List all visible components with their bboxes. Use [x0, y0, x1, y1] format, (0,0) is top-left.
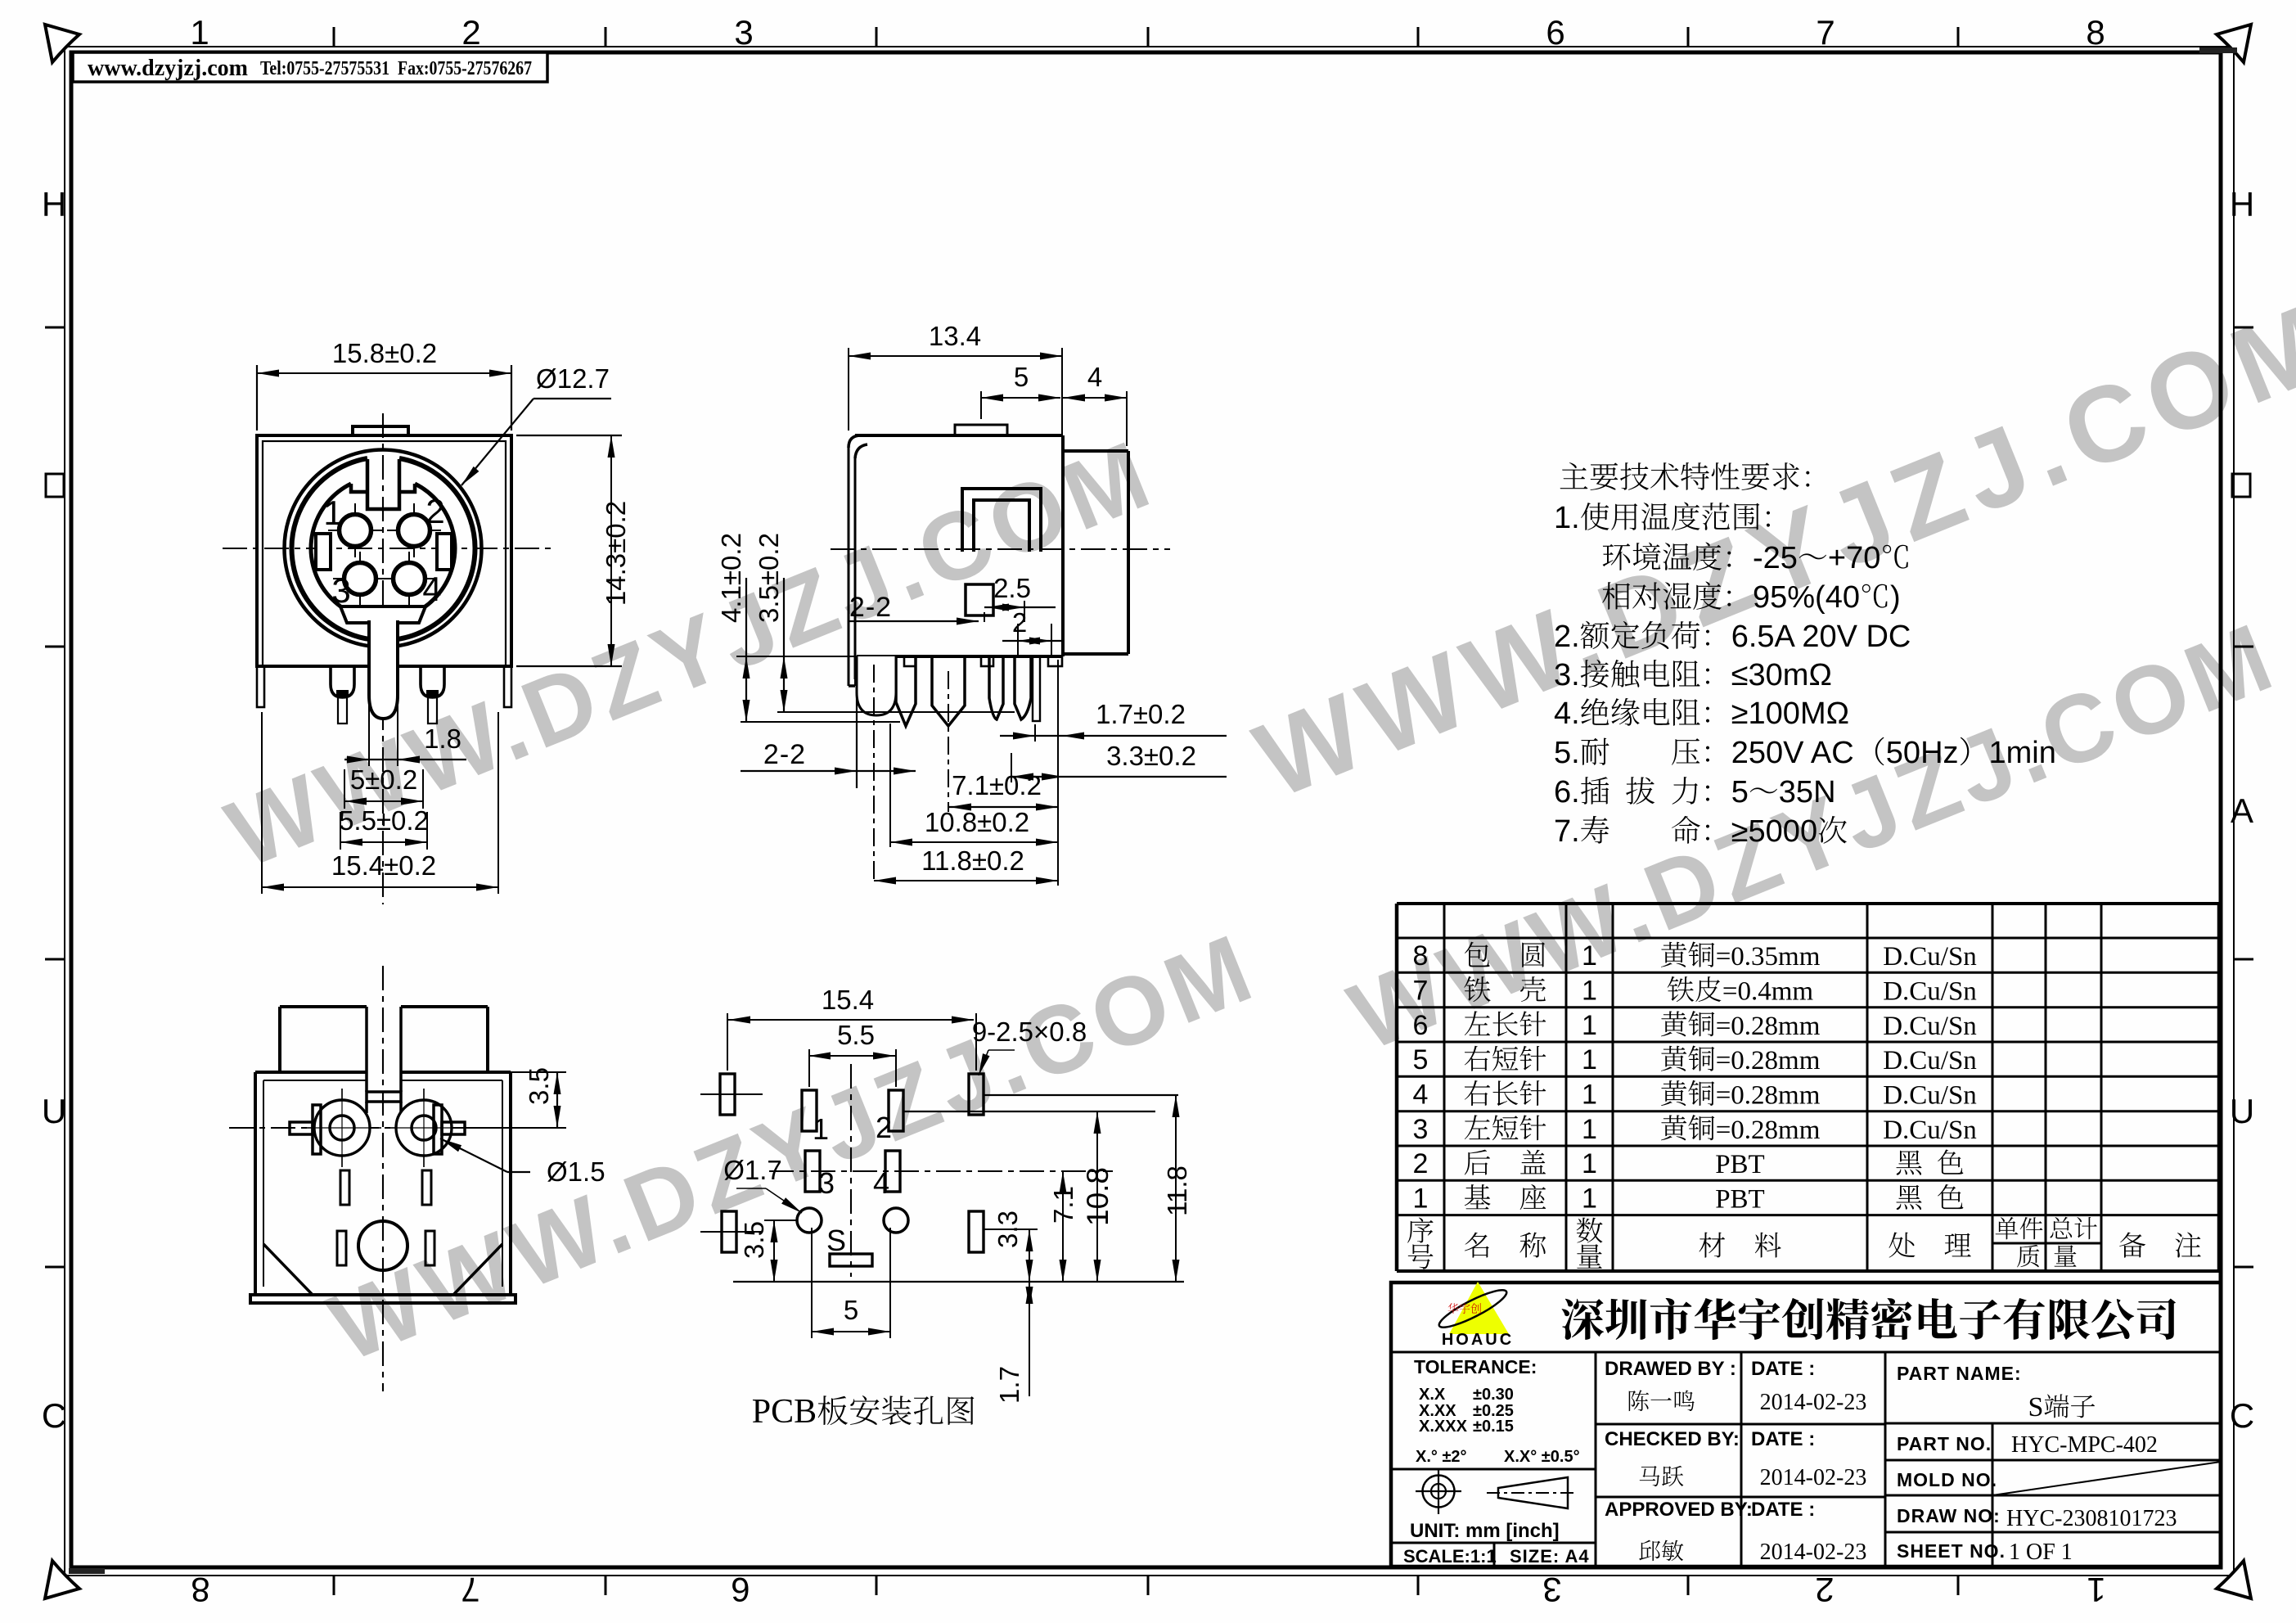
svg-text:D.Cu/Sn: D.Cu/Sn — [1883, 977, 1977, 1007]
svg-text:1.7: 1.7 — [994, 1366, 1024, 1404]
svg-text:=0.4mm: =0.4mm — [1722, 977, 1814, 1007]
svg-text:≤30m: ≤30m — [1731, 658, 1809, 692]
svg-text:X.X° ±0.5°: X.X° ±0.5° — [1504, 1448, 1580, 1466]
svg-text:1: 1 — [323, 494, 342, 532]
svg-text:Ø1.5: Ø1.5 — [547, 1156, 606, 1187]
svg-text:2: 2 — [1413, 1148, 1429, 1179]
svg-text:D.Cu/Sn: D.Cu/Sn — [1883, 1081, 1977, 1111]
svg-text:5: 5 — [1731, 775, 1749, 809]
svg-text:1: 1 — [190, 13, 209, 52]
svg-text:U: U — [2230, 1092, 2254, 1130]
svg-text:3: 3 — [1542, 1571, 1561, 1609]
svg-text:3: 3 — [1413, 1114, 1429, 1145]
svg-text:1: 1 — [1582, 1148, 1597, 1179]
svg-text:5: 5 — [1413, 1044, 1429, 1075]
svg-text:3.5: 3.5 — [739, 1221, 769, 1259]
svg-text:1: 1 — [1582, 1080, 1597, 1111]
svg-text:7.: 7. — [1554, 814, 1580, 849]
svg-text:250V AC: 250V AC — [1731, 736, 1854, 770]
svg-text:2-2: 2-2 — [849, 592, 892, 623]
svg-text:1: 1 — [1582, 1114, 1597, 1145]
svg-text:DRAW NO:: DRAW NO: — [1897, 1505, 2001, 1526]
svg-text:5: 5 — [1014, 362, 1029, 392]
svg-text:TOLERANCE:: TOLERANCE: — [1414, 1356, 1537, 1377]
svg-text:1min: 1min — [1989, 736, 2056, 770]
svg-text:H: H — [2230, 185, 2254, 223]
svg-text:1: 1 — [1582, 1010, 1597, 1041]
svg-text:DATE :: DATE : — [1751, 1428, 1815, 1450]
svg-text:S: S — [2028, 1392, 2044, 1422]
svg-text:2-2: 2-2 — [763, 739, 806, 770]
svg-text:5.: 5. — [1554, 736, 1580, 770]
svg-text:C: C — [2230, 1396, 2254, 1435]
svg-text:6.5A 20V DC: 6.5A 20V DC — [1731, 620, 1911, 654]
svg-text:2: 2 — [876, 1111, 892, 1144]
svg-text:www.dzyjzj.com: www.dzyjzj.com — [88, 55, 248, 81]
svg-text:A: A — [2231, 791, 2253, 830]
svg-text:15.4: 15.4 — [822, 985, 874, 1015]
svg-text:11.8±0.2: 11.8±0.2 — [921, 845, 1024, 876]
svg-text:CHECKED BY:: CHECKED BY: — [1605, 1428, 1740, 1450]
svg-text:4.: 4. — [1554, 697, 1580, 731]
svg-text:5.5: 5.5 — [837, 1020, 875, 1050]
svg-text:SCALE:1:1: SCALE:1:1 — [1403, 1546, 1497, 1567]
svg-text:1: 1 — [2087, 1571, 2105, 1609]
svg-text:PBT: PBT — [1715, 1185, 1765, 1215]
svg-text:1: 1 — [1582, 1183, 1597, 1215]
svg-text:1.8: 1.8 — [424, 724, 461, 754]
svg-text:HYC-2308101723: HYC-2308101723 — [2006, 1506, 2177, 1531]
svg-text:D.Cu/Sn: D.Cu/Sn — [1883, 942, 1977, 972]
svg-text:9-2.5×0.8: 9-2.5×0.8 — [972, 1017, 1087, 1047]
svg-text:UNIT: mm [inch]: UNIT: mm [inch] — [1410, 1520, 1560, 1542]
svg-text:7.1: 7.1 — [1048, 1186, 1078, 1224]
svg-text:8: 8 — [191, 1571, 209, 1609]
svg-text:2: 2 — [1012, 607, 1027, 638]
svg-text:Ω: Ω — [1809, 658, 1832, 692]
svg-text:15.4±0.2: 15.4±0.2 — [331, 850, 436, 881]
svg-text:2014-02-23: 2014-02-23 — [1760, 1390, 1867, 1415]
svg-text:DATE :: DATE : — [1751, 1499, 1815, 1521]
svg-text:1.: 1. — [1554, 501, 1580, 535]
svg-text:4: 4 — [873, 1166, 889, 1200]
svg-text:4: 4 — [1413, 1080, 1429, 1111]
svg-text:8: 8 — [1413, 940, 1429, 972]
svg-text:8: 8 — [2086, 13, 2105, 52]
svg-text:2.5: 2.5 — [993, 573, 1031, 603]
svg-text:D.Cu/Sn: D.Cu/Sn — [1883, 1116, 1977, 1145]
svg-text:=0.28mm: =0.28mm — [1716, 1116, 1821, 1145]
svg-text:15.8±0.2: 15.8±0.2 — [332, 338, 437, 368]
svg-text:1: 1 — [1582, 976, 1597, 1007]
svg-text:4: 4 — [1087, 362, 1102, 392]
svg-text:Ω: Ω — [1826, 697, 1849, 731]
svg-text:1: 1 — [1413, 1183, 1429, 1215]
svg-text:PART NO.: PART NO. — [1897, 1433, 1992, 1454]
svg-text:≥100M: ≥100M — [1731, 697, 1826, 731]
svg-text:3: 3 — [331, 571, 350, 610]
svg-text:2014-02-23: 2014-02-23 — [1760, 1540, 1867, 1565]
svg-text:1 OF 1: 1 OF 1 — [2009, 1540, 2073, 1565]
svg-text:±0.30: ±0.30 — [1473, 1386, 1514, 1404]
svg-text:): ) — [1890, 580, 1901, 615]
svg-text:HYC-MPC-402: HYC-MPC-402 — [2011, 1432, 2158, 1458]
svg-text:3: 3 — [734, 13, 753, 52]
svg-text:7: 7 — [461, 1571, 479, 1609]
svg-text:7: 7 — [1413, 976, 1429, 1007]
svg-text:=0.28mm: =0.28mm — [1716, 1012, 1821, 1041]
svg-text:3.5: 3.5 — [524, 1067, 554, 1105]
svg-text:C: C — [42, 1396, 66, 1435]
svg-text:Fax:0755-27576267: Fax:0755-27576267 — [398, 58, 532, 79]
svg-text:MOLD NO.: MOLD NO. — [1897, 1469, 1997, 1490]
svg-text:2: 2 — [1815, 1571, 1834, 1609]
svg-text:PBT: PBT — [1715, 1150, 1765, 1179]
svg-text:3.: 3. — [1554, 658, 1580, 692]
svg-text:11.8: 11.8 — [1162, 1165, 1192, 1216]
svg-text:±0.15: ±0.15 — [1473, 1418, 1514, 1436]
svg-text:2014-02-23: 2014-02-23 — [1760, 1465, 1867, 1490]
svg-text:3: 3 — [818, 1166, 835, 1200]
svg-text:2: 2 — [461, 13, 480, 52]
svg-text:1: 1 — [1582, 940, 1597, 972]
svg-text:5.5±0.2: 5.5±0.2 — [339, 805, 429, 836]
svg-text:+70: +70 — [1828, 541, 1880, 575]
svg-text:6: 6 — [1546, 13, 1564, 52]
svg-text:≥5000: ≥5000 — [1731, 814, 1817, 849]
svg-text:1: 1 — [813, 1112, 829, 1146]
svg-text:13.4: 13.4 — [929, 321, 981, 351]
svg-text:D.Cu/Sn: D.Cu/Sn — [1883, 1012, 1977, 1041]
svg-text:14.3±0.2: 14.3±0.2 — [601, 501, 631, 606]
svg-text:PART NAME:: PART NAME: — [1897, 1363, 2022, 1384]
svg-text:=0.28mm: =0.28mm — [1716, 1081, 1821, 1111]
svg-text:6.: 6. — [1554, 775, 1580, 809]
svg-text:6: 6 — [1413, 1010, 1429, 1041]
svg-text:95%(40: 95%(40 — [1753, 580, 1860, 615]
svg-text:Ø12.7: Ø12.7 — [536, 363, 610, 394]
svg-text:50Hz: 50Hz — [1886, 736, 1959, 770]
svg-text:PCB: PCB — [752, 1393, 817, 1431]
svg-text:X.X: X.X — [1419, 1386, 1446, 1404]
svg-text:5±0.2: 5±0.2 — [350, 764, 417, 795]
svg-text:-25: -25 — [1753, 541, 1798, 575]
svg-text:SHEET NO.: SHEET NO. — [1897, 1540, 2006, 1562]
svg-text:DRAWED BY :: DRAWED BY : — [1605, 1358, 1736, 1380]
svg-text:S: S — [826, 1224, 846, 1257]
svg-text:4: 4 — [422, 570, 441, 608]
svg-text:D.Cu/Sn: D.Cu/Sn — [1883, 1046, 1977, 1075]
svg-text:1: 1 — [1582, 1044, 1597, 1075]
svg-text:=0.35mm: =0.35mm — [1716, 942, 1821, 972]
svg-text:7: 7 — [1816, 13, 1835, 52]
svg-text:=0.28mm: =0.28mm — [1716, 1046, 1821, 1075]
svg-text:H: H — [42, 185, 66, 223]
svg-text:10.8: 10.8 — [1081, 1167, 1114, 1226]
svg-text:Ø1.7: Ø1.7 — [723, 1155, 782, 1185]
svg-text:U: U — [42, 1092, 66, 1130]
svg-text:3.3: 3.3 — [993, 1210, 1023, 1248]
svg-text:HOAUC: HOAUC — [1442, 1331, 1514, 1349]
svg-text:5: 5 — [844, 1295, 858, 1325]
svg-text:35N: 35N — [1779, 775, 1836, 809]
svg-text:X.XXX: X.XXX — [1419, 1418, 1468, 1436]
svg-text:1.7±0.2: 1.7±0.2 — [1096, 699, 1186, 729]
svg-text:3.5±0.2: 3.5±0.2 — [754, 533, 784, 623]
svg-text:10.8±0.2: 10.8±0.2 — [925, 807, 1029, 837]
svg-text:SIZE: A4: SIZE: A4 — [1510, 1546, 1590, 1567]
svg-text:Tel:0755-27575531: Tel:0755-27575531 — [260, 58, 389, 79]
svg-text:7.1±0.2: 7.1±0.2 — [952, 770, 1042, 800]
svg-text:2.: 2. — [1554, 620, 1580, 654]
svg-text:DATE :: DATE : — [1751, 1358, 1815, 1380]
svg-text:2: 2 — [425, 492, 444, 530]
svg-text:6: 6 — [731, 1571, 750, 1609]
svg-text:3.3±0.2: 3.3±0.2 — [1106, 741, 1196, 771]
svg-text:APPROVED BY:: APPROVED BY: — [1605, 1499, 1753, 1521]
svg-text:X.° ±2°: X.° ±2° — [1416, 1448, 1467, 1466]
svg-text:4.1±0.2: 4.1±0.2 — [716, 533, 746, 623]
